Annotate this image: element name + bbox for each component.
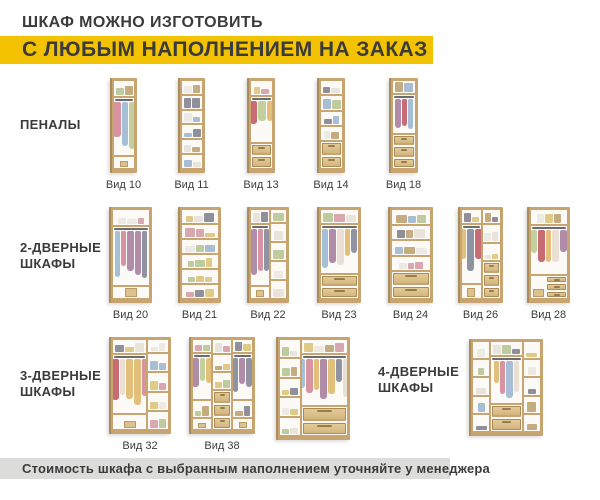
drawer xyxy=(484,275,499,285)
folded-item xyxy=(478,403,485,412)
hanging-garment xyxy=(239,358,245,384)
shelf-compartment xyxy=(462,210,481,225)
wardrobe-column xyxy=(251,81,272,168)
wardrobe-column xyxy=(321,210,358,298)
drawer xyxy=(322,276,357,286)
shelf-compartment xyxy=(271,243,286,262)
folded-item xyxy=(477,349,485,357)
shelf-compartment xyxy=(271,210,286,224)
floor-box xyxy=(198,423,206,428)
wardrobe-вид-18: Вид 18 xyxy=(389,78,418,173)
hanging-garment xyxy=(329,229,336,263)
folded-item xyxy=(215,382,222,388)
wardrobe-вид-38: Вид 38 xyxy=(189,337,255,434)
folded-item xyxy=(159,363,167,370)
folded-item xyxy=(205,289,214,297)
shelf-compartment xyxy=(213,340,231,355)
drawer xyxy=(322,288,357,297)
wardrobe-column xyxy=(522,342,540,431)
folded-item xyxy=(334,214,344,222)
wardrobe-вид-22: Вид 22 xyxy=(247,207,289,303)
shelf-compartment xyxy=(280,398,300,417)
folded-item xyxy=(138,218,144,224)
hanging-garment xyxy=(127,231,134,271)
section-label-line: ШКАФЫ xyxy=(378,380,459,396)
folded-item xyxy=(150,381,158,390)
folded-item xyxy=(404,247,415,254)
drawer-handle xyxy=(489,277,494,279)
shelf-compartment xyxy=(148,354,168,373)
folded-item xyxy=(273,213,285,221)
shelf-compartment xyxy=(213,355,231,373)
folded-item xyxy=(185,246,195,252)
hanging-rod xyxy=(463,226,480,228)
floor-box xyxy=(533,289,544,297)
folded-item xyxy=(188,261,194,268)
folded-item xyxy=(184,86,192,93)
drawer-handle xyxy=(258,159,264,161)
hanging-garment xyxy=(134,359,141,404)
wardrobe-unlabeled-14 xyxy=(276,337,350,440)
folded-item xyxy=(416,248,427,253)
hanging-compartment xyxy=(251,225,269,287)
drawer-handle xyxy=(317,410,332,412)
hanging-garment xyxy=(129,102,134,149)
wardrobe-interior xyxy=(280,340,347,435)
folded-item xyxy=(235,411,242,415)
drawer xyxy=(492,419,520,430)
section-label-3-door: 3-ДВЕРНЫЕШКАФЫ xyxy=(20,368,101,400)
folded-item xyxy=(205,245,215,252)
hanging-garment xyxy=(500,361,505,394)
shelf-compartment xyxy=(271,224,286,243)
floor-compartment xyxy=(193,419,211,429)
folded-item xyxy=(493,345,501,353)
wardrobe-вид-20: Вид 20 xyxy=(109,207,152,303)
folded-item xyxy=(205,233,215,237)
hanging-garment xyxy=(246,358,252,387)
drawer xyxy=(492,406,520,418)
shelf-compartment xyxy=(392,226,430,242)
folded-item xyxy=(215,366,222,370)
shelf-compartment xyxy=(271,262,286,281)
folded-item xyxy=(396,215,407,223)
drawer-handle xyxy=(502,421,511,423)
folded-item xyxy=(135,343,144,352)
folded-item xyxy=(193,117,199,123)
drawer xyxy=(547,284,566,289)
wardrobe-variant-label: Вид 26 xyxy=(444,309,517,321)
hanging-garment xyxy=(142,231,147,278)
wardrobe-вид-24: Вид 24 xyxy=(388,207,433,303)
shelf-compartment xyxy=(280,379,300,398)
hanging-garment xyxy=(395,99,401,128)
drawer xyxy=(322,157,341,167)
hanging-rod xyxy=(234,355,251,357)
shelf-compartment xyxy=(114,81,134,98)
shelf-compartment xyxy=(182,140,202,155)
wardrobe-interior xyxy=(462,210,500,298)
drawer xyxy=(322,143,341,154)
hanging-garment xyxy=(314,359,319,389)
folded-item xyxy=(273,250,283,259)
folded-item xyxy=(290,388,298,395)
hanging-garment xyxy=(258,101,265,121)
folded-item xyxy=(205,277,212,282)
hanging-compartment xyxy=(193,354,211,401)
wardrobe-interior xyxy=(114,81,134,168)
shelf-compartment xyxy=(524,378,540,396)
folded-item xyxy=(290,409,298,415)
folded-item xyxy=(502,345,510,353)
hanging-garment xyxy=(120,359,126,395)
footer-note-text: Стоимость шкафа с выбранным наполнением … xyxy=(0,461,490,476)
hanging-garment xyxy=(302,359,305,387)
shelf-compartment xyxy=(321,96,342,111)
folded-item xyxy=(196,276,203,282)
hanging-garment xyxy=(114,102,121,137)
shelf-compartment xyxy=(182,111,202,126)
wardrobe-interior xyxy=(113,340,168,429)
wardrobe-вид-28: Вид 28 xyxy=(527,207,570,303)
folded-item xyxy=(282,390,290,396)
wardrobe-column xyxy=(531,210,567,298)
folded-item xyxy=(406,230,414,238)
folded-item xyxy=(325,345,334,353)
section-label-line: 2-ДВЕРНЫЕ xyxy=(20,240,101,256)
shelf-compartment xyxy=(321,81,342,96)
folded-item xyxy=(415,262,422,269)
folded-item xyxy=(464,213,471,221)
footer-note: Стоимость шкафа с выбранным наполнением … xyxy=(0,458,450,479)
folded-item xyxy=(192,147,200,152)
folded-item xyxy=(323,99,332,109)
wardrobe-column xyxy=(211,340,231,429)
folded-item xyxy=(195,260,205,267)
folded-item xyxy=(186,292,194,297)
hanging-rod xyxy=(303,356,347,358)
folded-item xyxy=(408,263,414,269)
folded-item xyxy=(243,344,250,351)
floor-box xyxy=(239,422,247,428)
wardrobe-column xyxy=(473,342,489,431)
folded-item xyxy=(127,219,137,224)
floor-and-drawers-compartment xyxy=(531,276,567,298)
wardrobe-вид-10: Вид 10 xyxy=(110,78,137,173)
folded-item xyxy=(184,113,192,123)
folded-item xyxy=(476,426,487,430)
hanging-compartment xyxy=(321,225,358,274)
shelf-compartment xyxy=(473,415,489,431)
section-label-line: ПЕНАЛЫ xyxy=(20,117,81,133)
drawer-handle xyxy=(220,394,225,396)
hanging-rod xyxy=(394,96,414,98)
folded-item xyxy=(186,216,193,222)
hanging-rod xyxy=(115,99,133,101)
hanging-garment xyxy=(122,102,129,146)
shelf-compartment xyxy=(182,225,218,240)
drawer xyxy=(394,147,414,156)
folded-item xyxy=(492,232,499,241)
shelf-compartment xyxy=(524,397,540,415)
hanging-garment xyxy=(320,359,327,399)
hanging-garment xyxy=(200,358,205,380)
folded-item xyxy=(254,87,260,93)
shelf-compartment xyxy=(233,401,252,419)
folded-item xyxy=(150,402,158,409)
wardrobe-interior xyxy=(321,81,342,168)
folded-item xyxy=(324,119,332,125)
drawer-handle xyxy=(554,286,560,288)
wardrobe-interior xyxy=(393,81,415,168)
folded-item xyxy=(397,230,404,238)
folded-item xyxy=(125,86,133,95)
shelf-compartment xyxy=(280,359,300,378)
hanging-garment xyxy=(206,358,211,383)
floor-box xyxy=(467,288,475,297)
shelf-compartment xyxy=(491,342,521,357)
wardrobe-variant-label: Вид 21 xyxy=(164,309,235,321)
hanging-compartment xyxy=(462,225,481,285)
hanging-rod xyxy=(492,358,520,360)
hanging-garment xyxy=(328,359,335,394)
hanging-garment xyxy=(351,229,357,253)
folded-item xyxy=(184,133,192,138)
wardrobe-column xyxy=(193,340,211,429)
shelf-compartment xyxy=(182,125,202,140)
folded-item xyxy=(223,346,230,352)
shelf-compartment xyxy=(392,241,430,257)
folded-item xyxy=(528,367,536,375)
hanging-rod xyxy=(114,228,148,230)
hanging-garment xyxy=(135,231,141,275)
hanging-garment xyxy=(467,229,474,271)
floor-compartment xyxy=(531,276,546,298)
folded-item xyxy=(408,216,416,223)
hanging-compartment xyxy=(393,95,415,135)
folded-item xyxy=(528,389,536,394)
folded-item xyxy=(545,214,553,222)
folded-item xyxy=(159,402,167,409)
wardrobe-variant-label: Вид 28 xyxy=(513,309,584,321)
hanging-garment xyxy=(514,361,519,392)
folded-item xyxy=(527,402,536,412)
hanging-garment xyxy=(193,358,199,387)
folded-item xyxy=(537,214,544,223)
floor-box xyxy=(120,161,128,167)
folded-item xyxy=(290,351,298,357)
folded-item xyxy=(192,98,200,107)
folded-item xyxy=(399,263,407,269)
hanging-compartment xyxy=(302,355,348,407)
folded-item xyxy=(527,424,537,430)
shelf-compartment xyxy=(182,96,202,111)
drawer-stack xyxy=(546,276,567,298)
section-label-line: 3-ДВЕРНЫЕ xyxy=(20,368,101,384)
wardrobe-variant-label: Вид 20 xyxy=(95,309,166,321)
folded-item xyxy=(202,406,209,415)
headline-top: ШКАФ МОЖНО ИЗГОТОВИТЬ xyxy=(22,14,263,32)
headline-banner-text: С ЛЮБЫМ НАПОЛНЕНИЕМ НА ЗАКАЗ xyxy=(0,38,428,62)
folded-item xyxy=(184,98,192,108)
section-label-4-door: 4-ДВЕРНЫЕШКАФЫ xyxy=(378,364,459,396)
wardrobe-column xyxy=(182,81,202,168)
folded-item xyxy=(274,231,282,240)
wardrobe-column xyxy=(182,210,218,298)
folded-item xyxy=(151,347,158,351)
hanging-garment xyxy=(345,229,350,256)
folded-item xyxy=(404,83,413,93)
shelf-compartment xyxy=(483,210,500,225)
shelf-compartment xyxy=(392,210,430,226)
folded-item xyxy=(554,214,561,223)
folded-item xyxy=(204,213,214,222)
hanging-rod xyxy=(252,98,271,100)
folded-item xyxy=(253,213,260,221)
shelf-compartment xyxy=(193,401,211,419)
hanging-garment xyxy=(267,101,272,121)
folded-item xyxy=(118,218,125,223)
drawer-handle xyxy=(334,278,346,280)
floor-compartment xyxy=(233,419,252,429)
wardrobe-column xyxy=(392,210,430,298)
hanging-compartment xyxy=(113,227,149,287)
folded-item xyxy=(188,277,195,282)
hanging-compartment xyxy=(114,98,134,157)
shelf-compartment xyxy=(302,340,348,355)
drawer-handle xyxy=(328,159,334,161)
shelf-compartment xyxy=(271,281,286,298)
wardrobe-interior xyxy=(321,210,358,298)
drawer xyxy=(484,288,499,297)
wardrobe-column xyxy=(481,210,500,298)
section-label-line: 4-ДВЕРНЫЕ xyxy=(378,364,459,380)
folded-item xyxy=(304,343,313,353)
hanging-rod xyxy=(322,226,357,228)
folded-item xyxy=(332,100,341,109)
drawer xyxy=(252,145,271,156)
section-label-2-door: 2-ДВЕРНЫЕШКАФЫ xyxy=(20,240,101,272)
wardrobe-variant-label: Вид 22 xyxy=(233,309,303,321)
wardrobe-вид-11: Вид 11 xyxy=(178,78,205,173)
shelf-compartment xyxy=(213,373,231,391)
hanging-garment xyxy=(552,230,559,262)
folded-item xyxy=(273,289,285,297)
shelf-compartment xyxy=(182,270,218,285)
hanging-garment xyxy=(322,229,328,268)
folded-item xyxy=(485,213,491,222)
floor-compartment xyxy=(113,415,146,429)
shelf-compartment xyxy=(233,340,252,354)
drawer xyxy=(394,159,414,167)
folded-item xyxy=(485,255,491,259)
folded-item xyxy=(203,345,210,351)
wardrobe-interior xyxy=(251,81,272,168)
floor-box xyxy=(125,288,138,297)
drawer-handle xyxy=(401,149,407,151)
folded-item xyxy=(395,82,403,92)
folded-item xyxy=(395,247,403,253)
folded-item xyxy=(194,216,203,222)
hanging-garment xyxy=(251,229,257,275)
hanging-garment xyxy=(121,231,126,266)
shelf-compartment xyxy=(182,81,202,96)
shelf-compartment xyxy=(531,210,567,226)
folded-item xyxy=(184,160,192,167)
catalog-page: ШКАФ МОЖНО ИЗГОТОВИТЬ С ЛЮБЫМ НАПОЛНЕНИЕ… xyxy=(0,0,600,500)
drawer-handle xyxy=(489,265,494,267)
section-label-penaly: ПЕНАЛЫ xyxy=(20,117,81,133)
folded-item xyxy=(282,429,290,434)
hanging-rod xyxy=(532,227,566,229)
drawer-handle xyxy=(258,147,264,149)
folded-item xyxy=(346,215,356,222)
wardrobe-interior xyxy=(473,342,540,431)
wardrobe-column xyxy=(269,210,286,298)
hanging-garment xyxy=(251,101,257,125)
wardrobe-column xyxy=(321,81,342,168)
shelf-compartment xyxy=(473,378,489,396)
hanging-compartment xyxy=(491,357,521,405)
folded-item xyxy=(484,233,491,240)
folded-item xyxy=(116,88,124,95)
shelf-compartment xyxy=(524,415,540,431)
folded-item xyxy=(323,213,333,222)
wardrobe-interior xyxy=(392,210,430,298)
drawer-handle xyxy=(401,138,407,140)
wardrobe-column xyxy=(393,81,415,168)
wardrobe-column xyxy=(280,340,300,435)
hanging-garment xyxy=(343,359,347,397)
drawer-handle xyxy=(554,279,560,281)
folded-item xyxy=(235,342,242,351)
hanging-garment xyxy=(113,359,119,400)
floor-box xyxy=(256,290,264,297)
drawer xyxy=(303,423,347,435)
wardrobe-вид-26: Вид 26 xyxy=(458,207,503,303)
folded-item xyxy=(159,383,167,390)
folded-item xyxy=(196,245,205,252)
shelf-compartment xyxy=(251,81,272,97)
shelf-compartment xyxy=(321,210,358,225)
hanging-garment xyxy=(306,359,313,392)
wardrobe-вид-23: Вид 23 xyxy=(317,207,361,303)
shelf-compartment xyxy=(182,285,218,298)
drawer xyxy=(547,277,566,282)
folded-item xyxy=(244,406,250,416)
folded-item xyxy=(476,388,486,393)
drawer xyxy=(214,405,230,416)
shelf-compartment xyxy=(483,225,500,244)
floor-compartment xyxy=(114,157,134,168)
shelf-compartment xyxy=(392,257,430,273)
shelf-compartment xyxy=(148,412,168,429)
section-label-line: ШКАФЫ xyxy=(20,384,101,400)
folded-item xyxy=(526,353,537,357)
section-label-line: ШКАФЫ xyxy=(20,256,101,272)
folded-item xyxy=(290,428,298,434)
hanging-rod xyxy=(114,356,145,358)
folded-item xyxy=(193,162,201,167)
floor-compartment xyxy=(251,287,269,299)
drawer-handle xyxy=(502,408,511,410)
wardrobe-interior xyxy=(182,81,202,168)
wardrobe-column xyxy=(231,340,252,429)
folded-item xyxy=(125,347,134,352)
shelf-compartment xyxy=(473,342,489,360)
hanging-garment xyxy=(408,99,413,129)
folded-item xyxy=(206,258,212,267)
